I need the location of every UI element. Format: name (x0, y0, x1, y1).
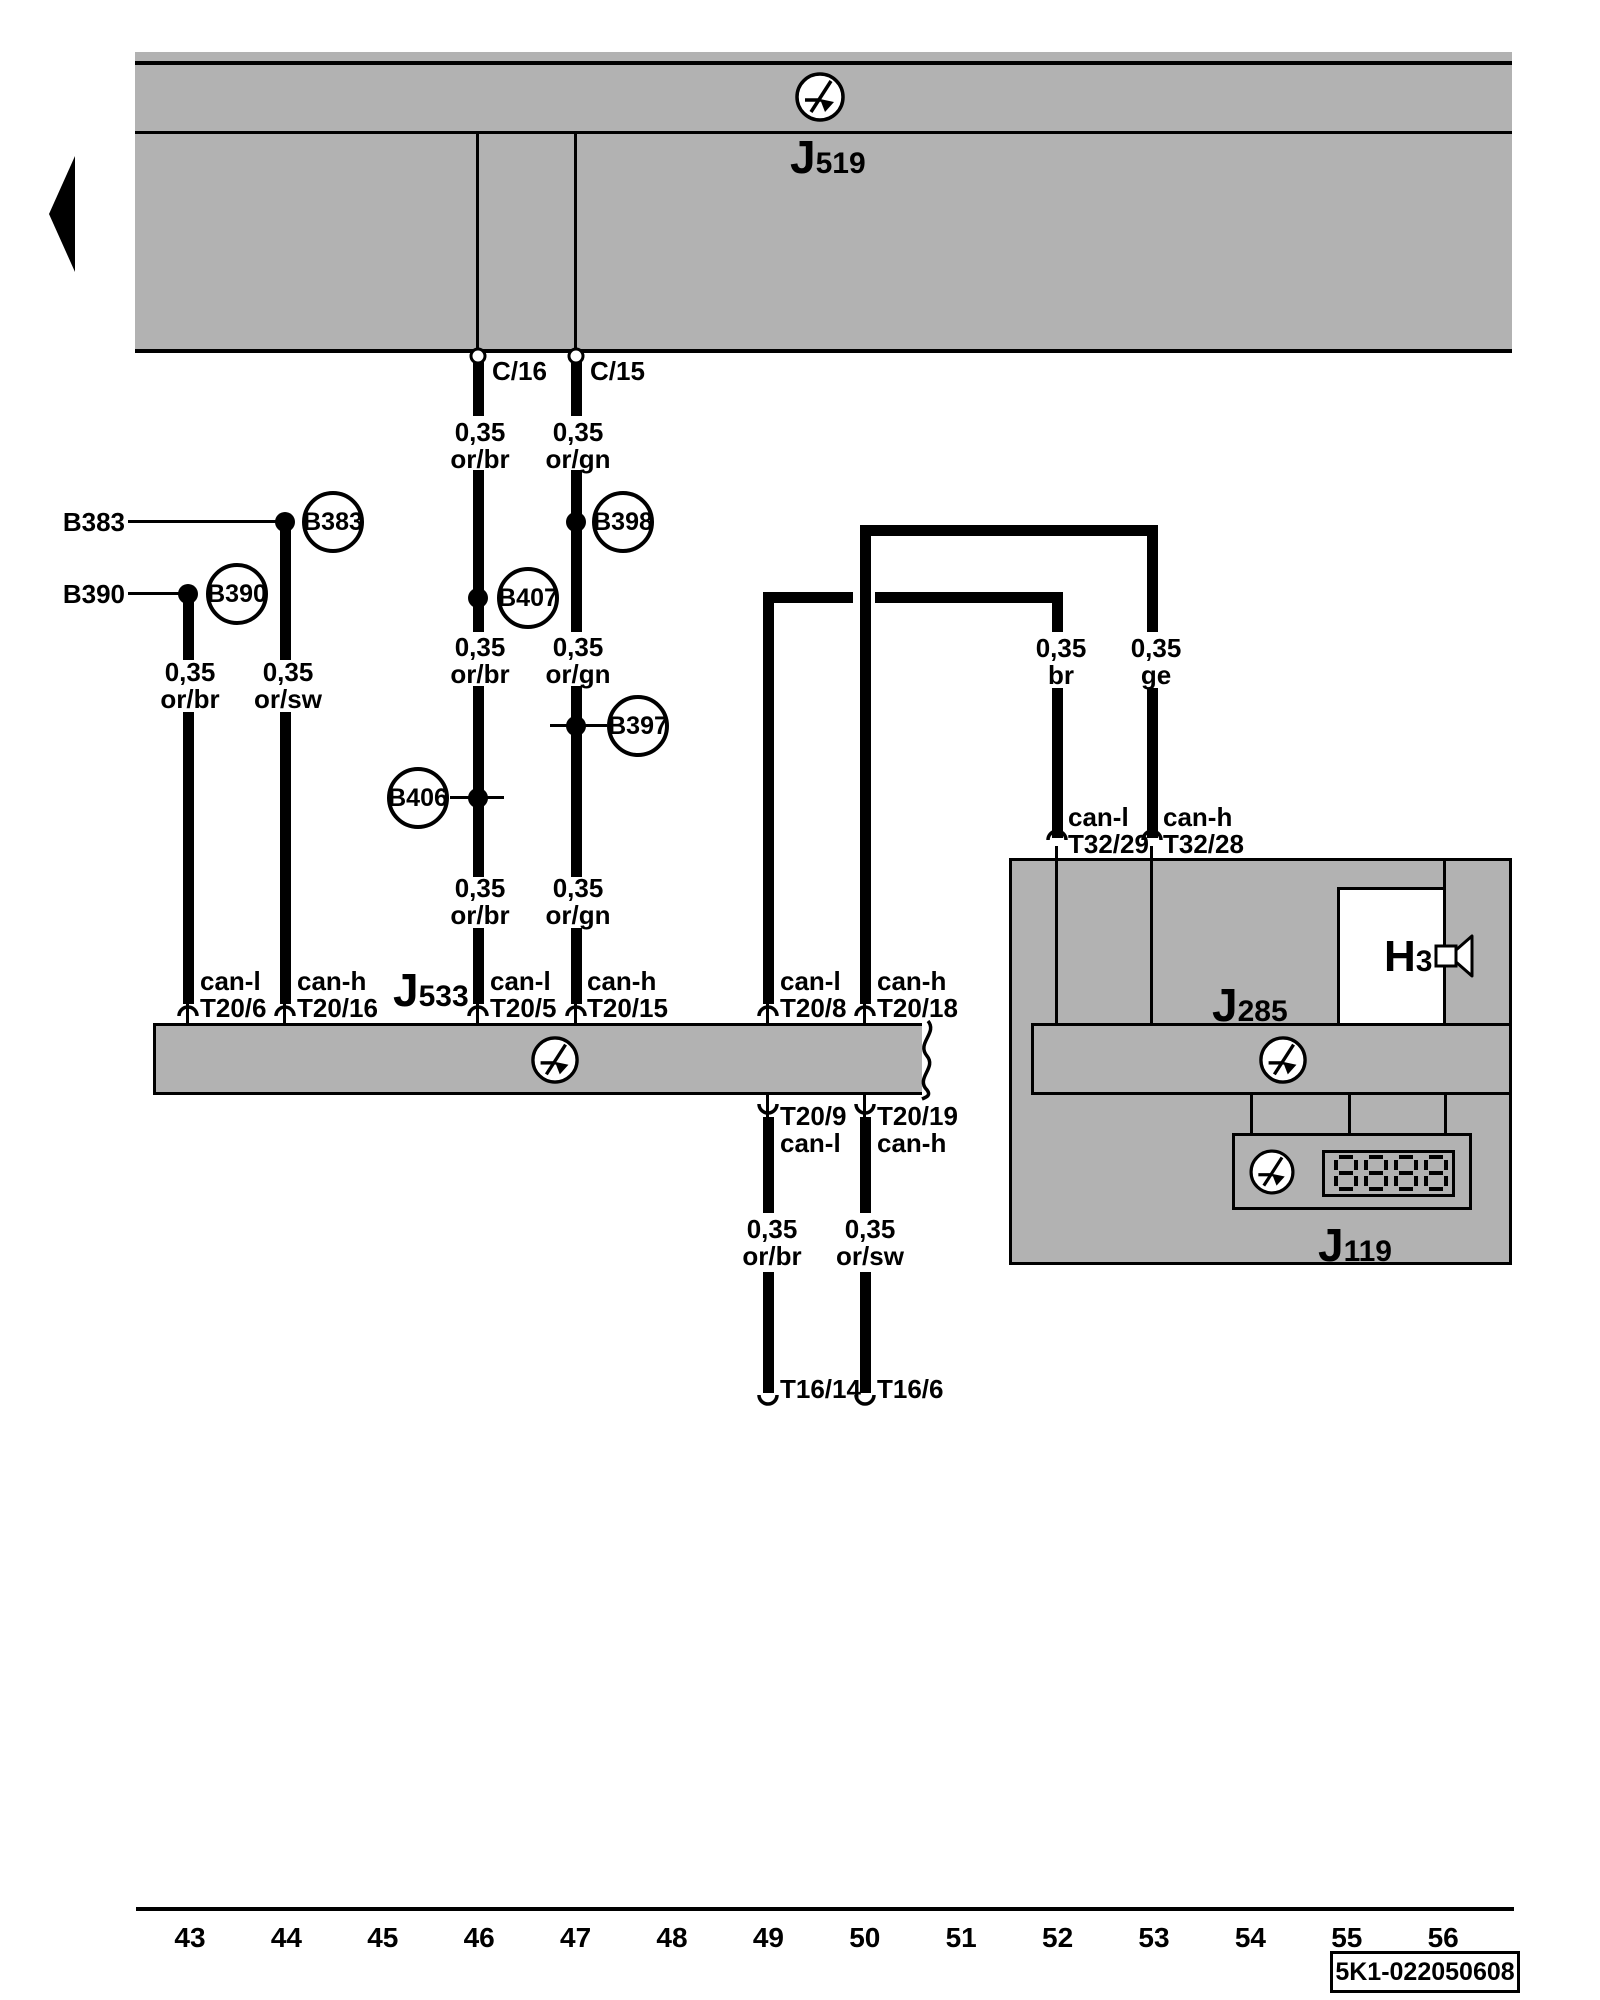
j519-bottom-rule (135, 349, 1512, 353)
stub-t20-16 (283, 1004, 286, 1024)
pin-name: T20/16 (297, 995, 378, 1022)
wire-canl-drop-2 (1052, 688, 1063, 838)
j533-label: J533 (393, 963, 469, 1017)
wire-size: 0,35 (546, 419, 611, 446)
pin-name: T32/29 (1068, 831, 1149, 858)
b383-side-label: B383 (40, 509, 125, 536)
wire-size: 0,35 (546, 634, 611, 661)
pin-name: T20/5 (490, 995, 557, 1022)
pin-name: T32/28 (1163, 831, 1244, 858)
wire-c15-seg3 (571, 686, 582, 877)
stub-t20-19 (863, 1095, 866, 1117)
c16-label: C/16 (492, 358, 547, 385)
pin-name: T20/15 (587, 995, 668, 1022)
wire-canl-drop-1 (1052, 592, 1063, 632)
b390-side-label: B390 (40, 581, 125, 608)
scale-number-44: 44 (271, 1922, 302, 1954)
wiring-diagram-page: J519 J533 J285 H3 J119 (0, 0, 1600, 2000)
b398-circle: B398 (592, 491, 654, 553)
pin-label-t32-28: can-hT32/28 (1163, 804, 1244, 858)
bus-name: can-l (1068, 804, 1149, 831)
j285-lead-t32-28 (1150, 846, 1153, 1024)
j285-label-sub: 285 (1238, 995, 1288, 1028)
wire-label-lower-b: 0,35or/sw (836, 1216, 904, 1270)
stub-t20-15 (574, 1004, 577, 1024)
j119-lead-2 (1348, 1095, 1351, 1133)
scale-number-54: 54 (1235, 1922, 1266, 1954)
wire-c16-seg3 (473, 686, 484, 877)
wire-t20-9-seg2 (763, 1272, 774, 1393)
bus-name: can-l (490, 968, 557, 995)
wire-c16-seg1 (473, 362, 484, 416)
j519-lead-c16 (476, 134, 479, 352)
pin-label-t20-19: T20/19can-h (877, 1103, 958, 1157)
bus-name: can-h (877, 968, 958, 995)
wire-label-ge: 0,35ge (1131, 635, 1182, 689)
wire-color: or/sw (254, 686, 322, 713)
wire-canl-horiz-2 (875, 592, 1063, 603)
b383-link-line (128, 520, 287, 523)
stub-t20-6 (186, 1004, 189, 1024)
wire-size: 0,35 (546, 875, 611, 902)
wire-c15-seg2 (571, 470, 582, 632)
pin-label-t20-6: can-lT20/6 (200, 968, 267, 1022)
j519-label-prefix: J (790, 131, 816, 183)
wire-canh-drop-1 (1147, 525, 1158, 632)
pin-label-t20-8: can-lT20/8 (780, 968, 847, 1022)
b407-circle-label: B407 (498, 584, 558, 613)
stub-t20-8 (766, 1004, 769, 1024)
wire-label-c16-a: 0,35or/br (450, 419, 509, 473)
wire-canh-horiz (860, 525, 1158, 536)
wire-size: 0,35 (836, 1216, 904, 1243)
b407-dot (468, 588, 488, 608)
j119-lead-3 (1444, 1095, 1447, 1133)
j533-label-sub: 533 (419, 980, 469, 1013)
j119-lead-1 (1250, 1095, 1253, 1133)
terminal-t16-14-icon (759, 1395, 777, 1404)
b383-circle: B383 (302, 491, 364, 553)
pin-label-t20-16: can-hT20/16 (297, 968, 378, 1022)
scale-number-55: 55 (1331, 1922, 1362, 1954)
wire-c15-seg4 (571, 928, 582, 1004)
scale-number-48: 48 (656, 1922, 687, 1954)
wire-label-c16-c: 0,35or/br (450, 875, 509, 929)
stub-t20-5 (476, 1004, 479, 1024)
wire-label-c15-c: 0,35or/gn (546, 875, 611, 929)
wire-size: 0,35 (450, 875, 509, 902)
wire-color: or/br (742, 1243, 801, 1270)
bus-name: can-l (780, 968, 847, 995)
wire-size: 0,35 (450, 419, 509, 446)
b383-circle-label: B383 (303, 508, 363, 537)
j285-inner-bar (1031, 1023, 1512, 1095)
pin-label-t20-15: can-hT20/15 (587, 968, 668, 1022)
h3-label: H3 (1384, 932, 1432, 982)
scale-number-47: 47 (560, 1922, 591, 1954)
wire-label-lower-a: 0,35or/br (742, 1216, 801, 1270)
pin-name: T20/8 (780, 995, 847, 1022)
h3-top-lead (1443, 858, 1446, 889)
j519-label-sub: 519 (816, 147, 866, 180)
wire-canh-vert (860, 525, 871, 1004)
wire-label-c15-a: 0,35or/gn (546, 419, 611, 473)
b398-circle-label: B398 (593, 508, 653, 537)
scale-number-45: 45 (367, 1922, 398, 1954)
j285-lead-t32-29 (1055, 846, 1058, 1024)
pin-label-t16-6: T16/6 (877, 1376, 944, 1403)
wire-label-br: 0,35br (1036, 635, 1087, 689)
wire-c16-seg4 (473, 928, 484, 1004)
wire-b390-seg2 (183, 712, 194, 1004)
wire-color: or/gn (546, 661, 611, 688)
wire-size: 0,35 (1036, 635, 1087, 662)
stub-t20-9 (766, 1095, 769, 1117)
scale-number-49: 49 (753, 1922, 784, 1954)
j285-label: J285 (1212, 978, 1288, 1032)
diagram-code: 5K1-022050608 (1335, 1958, 1514, 1987)
bus-name: can-h (877, 1130, 958, 1157)
wire-color: or/gn (546, 902, 611, 929)
wire-label-c16-b: 0,35or/br (450, 634, 509, 688)
diagram-code-box: 5K1-022050608 (1330, 1951, 1520, 1993)
bus-name: can-l (780, 1130, 847, 1157)
wire-b383-seg1 (280, 518, 291, 660)
wire-color: or/br (160, 686, 219, 713)
bus-name: can-h (297, 968, 378, 995)
pin-label-t20-9: T20/9can-l (780, 1103, 847, 1157)
c15-label: C/15 (590, 358, 645, 385)
pin-label-t20-18: can-hT20/18 (877, 968, 958, 1022)
b390-circle-label: B390 (207, 580, 267, 609)
wire-color: br (1036, 662, 1087, 689)
b383-dot (275, 512, 295, 532)
wire-color: or/br (450, 902, 509, 929)
scale-number-43: 43 (174, 1922, 205, 1954)
pin-name: T20/9 (780, 1103, 847, 1130)
wire-canl-horiz-1 (763, 592, 853, 603)
b406-circle: B406 (387, 767, 449, 829)
j119-label: J119 (1318, 1218, 1392, 1272)
wire-size: 0,35 (1131, 635, 1182, 662)
j285-label-prefix: J (1212, 979, 1238, 1031)
b398-dot (566, 512, 586, 532)
j533-bar-torn-edge (922, 1021, 931, 1099)
pin-label-t32-29: can-lT32/29 (1068, 804, 1149, 858)
wire-t20-9-seg1 (763, 1117, 774, 1213)
j519-lead-c15 (574, 134, 577, 352)
bus-name: can-h (587, 968, 668, 995)
stub-t20-18 (863, 1004, 866, 1024)
b406-dot (468, 788, 488, 808)
wire-color: or/sw (836, 1243, 904, 1270)
wire-t20-19-seg2 (860, 1272, 871, 1393)
wire-canh-drop-2 (1147, 688, 1158, 838)
b397-dot (566, 716, 586, 736)
j519-top-rule (135, 61, 1512, 65)
wire-size: 0,35 (160, 659, 219, 686)
scale-number-53: 53 (1138, 1922, 1169, 1954)
wire-color: ge (1131, 662, 1182, 689)
b390-dot (178, 584, 198, 604)
j519-label: J519 (790, 130, 866, 184)
wire-color: or/br (450, 446, 509, 473)
j119-display (1322, 1150, 1455, 1197)
wire-t20-19-seg1 (860, 1117, 871, 1213)
j533-label-prefix: J (393, 964, 419, 1016)
scale-number-50: 50 (849, 1922, 880, 1954)
page-direction-arrow-icon (49, 156, 75, 272)
scale-number-52: 52 (1042, 1922, 1073, 1954)
wire-c15-seg1 (571, 362, 582, 416)
h3-label-sub: 3 (1416, 945, 1433, 978)
pin-label-t20-5: can-lT20/5 (490, 968, 557, 1022)
scale-line (136, 1907, 1514, 1911)
wire-color: or/br (450, 661, 509, 688)
pin-label-t16-14: T16/14 (780, 1376, 861, 1403)
wire-size: 0,35 (254, 659, 322, 686)
b406-circle-label: B406 (388, 784, 448, 813)
pin-name: T20/6 (200, 995, 267, 1022)
bus-name: can-l (200, 968, 267, 995)
b397-circle: B397 (607, 695, 669, 757)
pin-name: T20/18 (877, 995, 958, 1022)
j533-bar (153, 1023, 922, 1095)
scale-number-56: 56 (1428, 1922, 1459, 1954)
b407-circle: B407 (497, 567, 559, 629)
wire-size: 0,35 (450, 634, 509, 661)
j119-label-prefix: J (1318, 1219, 1344, 1271)
wire-b383-seg2 (280, 712, 291, 1004)
h3-label-prefix: H (1384, 932, 1416, 981)
wire-color: or/gn (546, 446, 611, 473)
wire-canl-vert (763, 592, 774, 1004)
b390-circle: B390 (206, 563, 268, 625)
j519-box (135, 52, 1512, 353)
j119-label-sub: 119 (1344, 1235, 1392, 1268)
wire-size: 0,35 (742, 1216, 801, 1243)
pin-name: T20/19 (877, 1103, 958, 1130)
wire-label-c15-b: 0,35or/gn (546, 634, 611, 688)
scale-number-51: 51 (946, 1922, 977, 1954)
scale-number-46: 46 (464, 1922, 495, 1954)
wire-label-left-a: 0,35or/br (160, 659, 219, 713)
bus-name: can-h (1163, 804, 1244, 831)
wire-label-left-b: 0,35or/sw (254, 659, 322, 713)
b397-circle-label: B397 (608, 712, 668, 741)
